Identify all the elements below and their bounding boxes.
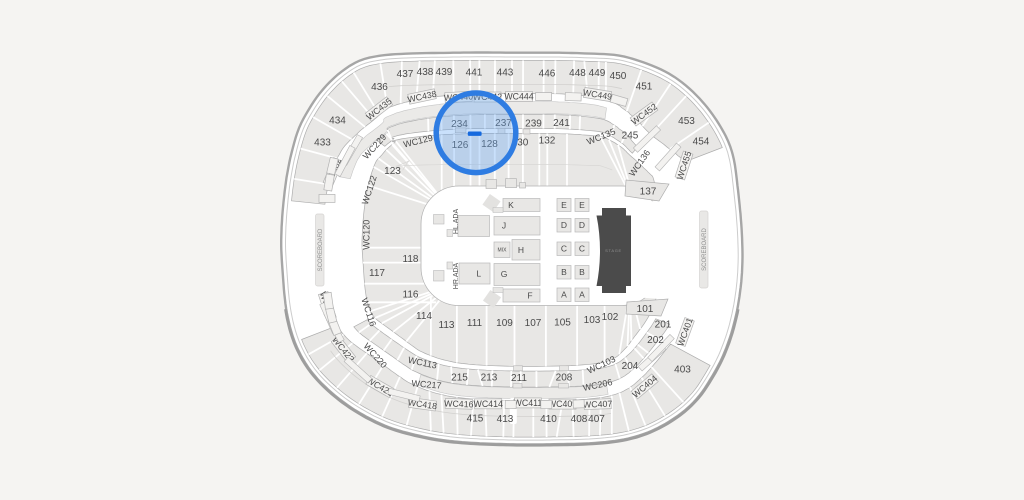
svg-text:WC416: WC416	[444, 398, 474, 409]
svg-text:415: 415	[467, 414, 484, 425]
svg-text:SCOREBOARD: SCOREBOARD	[702, 228, 708, 271]
svg-text:245: 245	[622, 131, 639, 142]
svg-text:137: 137	[640, 187, 657, 198]
svg-text:239: 239	[525, 119, 542, 130]
svg-text:101: 101	[637, 304, 654, 315]
svg-text:J: J	[502, 221, 506, 231]
svg-text:403: 403	[674, 365, 691, 376]
svg-text:WC414: WC414	[474, 399, 503, 409]
svg-text:A: A	[561, 290, 567, 300]
svg-text:WC444: WC444	[504, 92, 533, 102]
svg-text:B: B	[579, 267, 585, 277]
svg-text:K: K	[508, 200, 514, 210]
svg-text:109: 109	[496, 318, 513, 329]
svg-text:B: B	[561, 267, 567, 277]
svg-text:E: E	[579, 200, 585, 210]
svg-text:HR.ADA: HR.ADA	[453, 262, 460, 289]
svg-text:436: 436	[371, 82, 388, 93]
svg-text:215: 215	[451, 373, 468, 384]
svg-text:A: A	[579, 290, 585, 300]
svg-text:123: 123	[384, 166, 401, 177]
svg-text:113: 113	[439, 320, 455, 331]
svg-text:MIX: MIX	[498, 248, 508, 254]
svg-text:204: 204	[622, 361, 639, 372]
svg-text:202: 202	[647, 335, 664, 346]
svg-text:439: 439	[436, 67, 453, 78]
svg-text:449: 449	[589, 68, 606, 79]
svg-text:SCOREBOARD: SCOREBOARD	[318, 228, 324, 271]
svg-text:107: 107	[525, 318, 542, 329]
svg-text:STAGE: STAGE	[605, 248, 622, 253]
svg-text:443: 443	[497, 68, 514, 79]
svg-text:434: 434	[329, 116, 346, 127]
svg-text:241: 241	[553, 118, 570, 129]
svg-text:118: 118	[403, 254, 419, 265]
svg-text:WC120: WC120	[362, 220, 372, 250]
svg-text:211: 211	[511, 373, 527, 384]
svg-text:453: 453	[678, 116, 695, 127]
svg-text:H: H	[518, 245, 524, 255]
svg-text:D: D	[579, 220, 585, 230]
svg-text:L: L	[476, 269, 481, 279]
svg-text:450: 450	[610, 71, 627, 82]
svg-text:D: D	[561, 220, 567, 230]
svg-text:132: 132	[539, 136, 556, 147]
svg-text:413: 413	[497, 414, 514, 425]
svg-text:441: 441	[466, 68, 483, 79]
svg-text:446: 446	[539, 69, 556, 80]
svg-text:E: E	[561, 200, 567, 210]
svg-text:114: 114	[416, 311, 432, 322]
svg-text:105: 105	[554, 318, 571, 329]
svg-text:433: 433	[314, 138, 331, 149]
svg-text:WC407: WC407	[583, 399, 613, 410]
svg-text:448: 448	[569, 68, 586, 79]
svg-text:117: 117	[369, 268, 385, 279]
svg-text:407: 407	[588, 414, 605, 425]
svg-text:454: 454	[693, 137, 710, 148]
svg-text:213: 213	[481, 373, 498, 384]
svg-text:F: F	[527, 291, 532, 301]
svg-text:451: 451	[636, 82, 653, 93]
svg-text:116: 116	[403, 290, 419, 301]
svg-text:C: C	[561, 244, 567, 254]
svg-text:111: 111	[467, 318, 483, 329]
svg-text:208: 208	[556, 373, 573, 384]
svg-text:WC411: WC411	[514, 398, 543, 408]
svg-text:438: 438	[417, 67, 434, 78]
svg-text:C: C	[579, 244, 585, 254]
svg-text:103: 103	[584, 315, 601, 326]
svg-text:437: 437	[397, 69, 414, 80]
svg-text:201: 201	[655, 320, 672, 331]
svg-text:G: G	[501, 269, 508, 279]
svg-text:410: 410	[540, 414, 557, 425]
svg-text:408: 408	[571, 414, 588, 425]
svg-text:HL.ADA: HL.ADA	[453, 209, 460, 235]
svg-text:102: 102	[602, 312, 619, 323]
